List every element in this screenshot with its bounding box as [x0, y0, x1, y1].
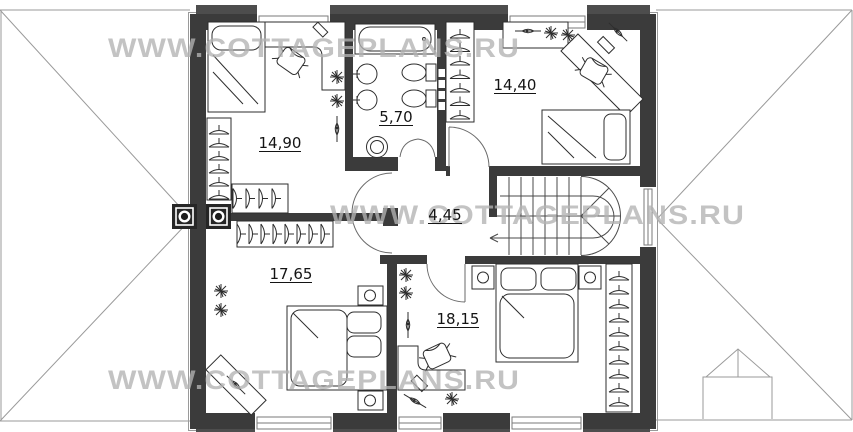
wardrobe-hangers-corridor-upper	[232, 184, 288, 213]
watermark-text-top: WWW.COTTAGEPLANS.RU	[108, 33, 520, 63]
wardrobe-hangers-bottom-right	[606, 264, 632, 412]
wardrobe-hangers-bottom-left	[237, 221, 333, 247]
window-bottom-3	[510, 413, 583, 432]
bed-double-bottom-right	[496, 264, 578, 362]
plant-icon	[214, 284, 228, 317]
room-label-bedroom-bottom-left: 17,65	[270, 265, 313, 283]
floor-plan-page: WWW.COTTAGEPLANS.RU WWW.COTTAGEPLANS.RU …	[0, 0, 853, 432]
room-label-bathroom: 5,70	[379, 108, 412, 126]
room-label-bedroom-top-left: 14,90	[259, 134, 302, 152]
watermark-text-middle: WWW.COTTAGEPLANS.RU	[330, 200, 745, 230]
room-label-hallway: 4,45	[428, 206, 461, 224]
roof-dormer	[703, 349, 772, 419]
window-bottom-2	[397, 413, 443, 432]
radiator-icon	[335, 116, 339, 142]
room-label-bedroom-top-right: 14,40	[494, 76, 537, 94]
sink-icon	[353, 64, 377, 110]
watermark-text-bottom: WWW.COTTAGEPLANS.RU	[108, 365, 520, 395]
washing-machine-icon	[367, 137, 388, 158]
bed-single-top-right	[542, 110, 630, 164]
floor-plan-drawing: WWW.COTTAGEPLANS.RU WWW.COTTAGEPLANS.RU …	[0, 0, 853, 432]
room-label-bedroom-bottom-right: 18,15	[437, 310, 480, 328]
toilet-icon	[402, 64, 436, 107]
closet-hangers-top-left	[207, 118, 231, 200]
window-bottom-1	[255, 413, 333, 432]
